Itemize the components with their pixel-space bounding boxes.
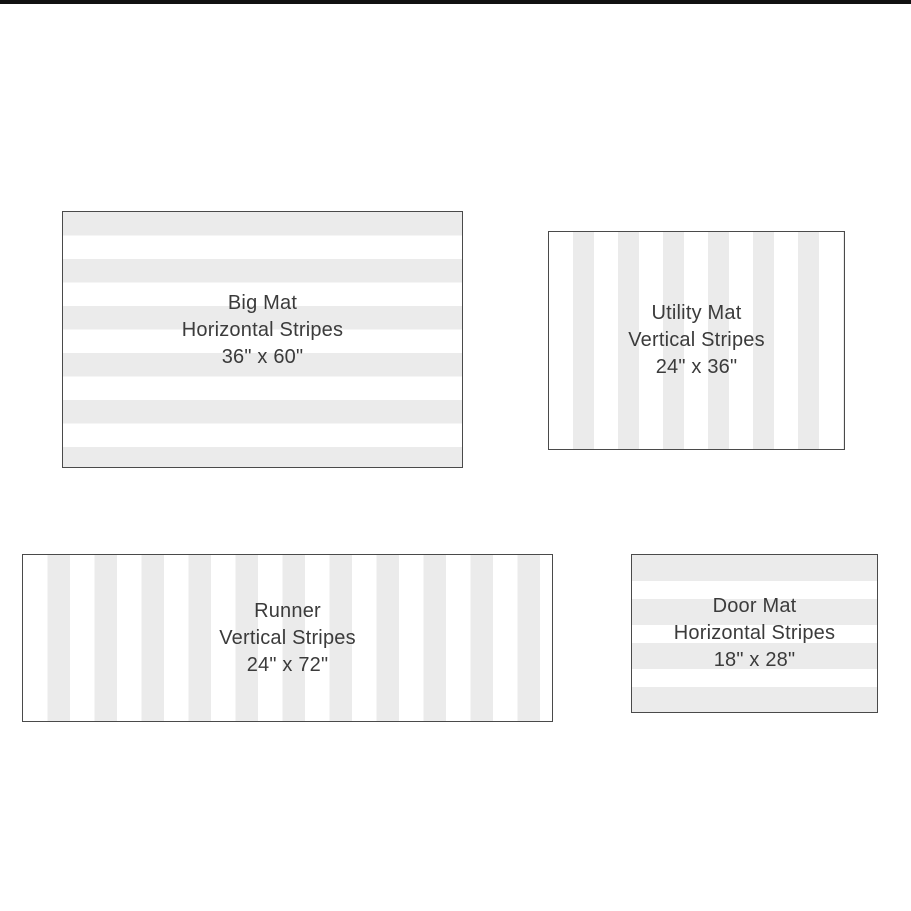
big-mat-name: Big Mat	[182, 290, 343, 317]
door-mat-swatch: Door Mat Horizontal Stripes 18" x 28"	[631, 554, 878, 713]
runner-mat-pattern: Vertical Stripes	[219, 625, 356, 652]
big-mat-swatch: Big Mat Horizontal Stripes 36" x 60"	[62, 211, 463, 468]
utility-mat-pattern: Vertical Stripes	[628, 327, 765, 354]
utility-mat-size: 24" x 36"	[628, 354, 765, 381]
utility-mat-label: Utility Mat Vertical Stripes 24" x 36"	[628, 300, 765, 381]
door-mat-pattern: Horizontal Stripes	[674, 620, 835, 647]
runner-mat-name: Runner	[219, 598, 356, 625]
mat-size-chart: Big Mat Horizontal Stripes 36" x 60" Uti…	[0, 0, 911, 911]
runner-mat-swatch: Runner Vertical Stripes 24" x 72"	[22, 554, 553, 722]
big-mat-label: Big Mat Horizontal Stripes 36" x 60"	[182, 290, 343, 371]
door-mat-label: Door Mat Horizontal Stripes 18" x 28"	[674, 593, 835, 674]
runner-mat-size: 24" x 72"	[219, 652, 356, 679]
big-mat-pattern: Horizontal Stripes	[182, 317, 343, 344]
utility-mat-swatch: Utility Mat Vertical Stripes 24" x 36"	[548, 231, 845, 450]
door-mat-size: 18" x 28"	[674, 647, 835, 674]
top-border-bar	[0, 0, 911, 4]
utility-mat-name: Utility Mat	[628, 300, 765, 327]
door-mat-name: Door Mat	[674, 593, 835, 620]
runner-mat-label: Runner Vertical Stripes 24" x 72"	[219, 598, 356, 679]
big-mat-size: 36" x 60"	[182, 344, 343, 371]
